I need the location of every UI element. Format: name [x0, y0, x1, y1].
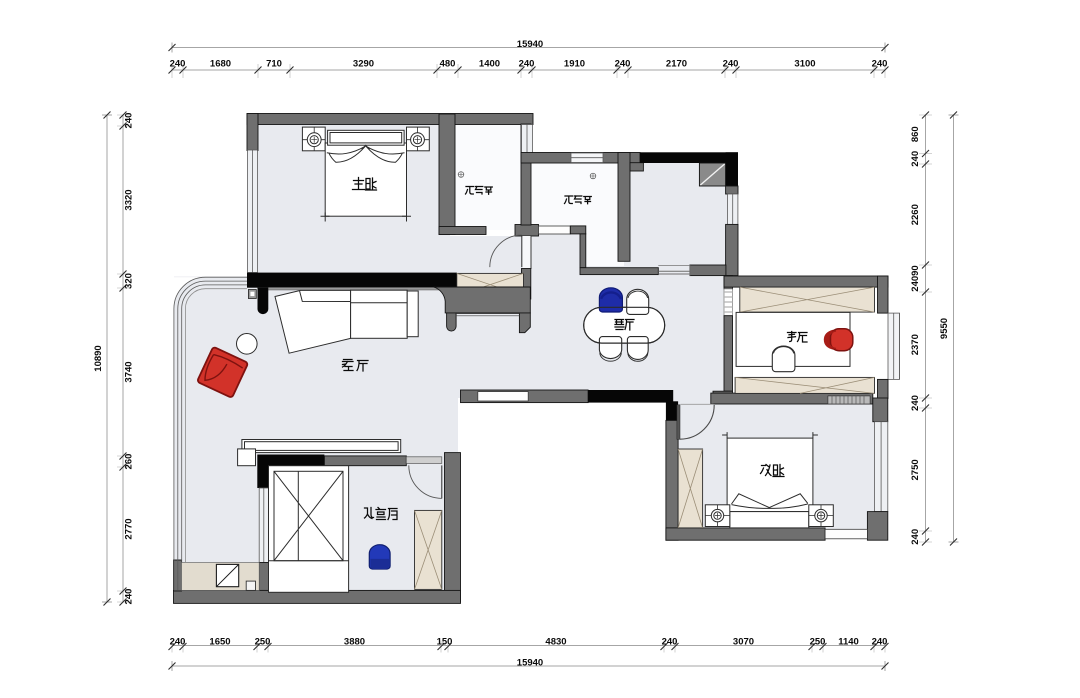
svg-text:24090: 24090 [910, 265, 921, 291]
svg-text:240: 240 [910, 151, 921, 167]
svg-text:3880: 3880 [344, 637, 365, 648]
svg-text:240: 240 [124, 113, 135, 129]
svg-text:3100: 3100 [794, 59, 815, 70]
svg-text:240: 240 [615, 59, 631, 70]
svg-text:250: 250 [810, 637, 826, 648]
svg-text:480: 480 [440, 59, 456, 70]
svg-text:250: 250 [255, 637, 271, 648]
svg-text:1680: 1680 [210, 59, 231, 70]
svg-text:4830: 4830 [545, 637, 566, 648]
svg-text:2370: 2370 [910, 334, 921, 355]
svg-text:10890: 10890 [93, 345, 104, 371]
svg-text:860: 860 [910, 126, 921, 142]
svg-text:2170: 2170 [666, 59, 687, 70]
svg-text:1650: 1650 [209, 637, 230, 648]
svg-text:240: 240 [170, 637, 186, 648]
svg-text:3070: 3070 [733, 637, 754, 648]
svg-text:2770: 2770 [124, 518, 135, 539]
svg-text:15940: 15940 [517, 658, 543, 669]
svg-text:240: 240 [910, 395, 921, 411]
svg-text:240: 240 [662, 637, 678, 648]
svg-text:150: 150 [437, 637, 453, 648]
svg-text:710: 710 [266, 59, 282, 70]
svg-text:240: 240 [723, 59, 739, 70]
svg-text:320: 320 [124, 273, 135, 289]
svg-text:2750: 2750 [910, 459, 921, 480]
svg-text:240: 240 [124, 589, 135, 605]
svg-text:3320: 3320 [124, 189, 135, 210]
svg-text:3290: 3290 [353, 59, 374, 70]
svg-text:3740: 3740 [124, 361, 135, 382]
svg-text:9550: 9550 [939, 318, 950, 339]
svg-text:240: 240 [872, 637, 888, 648]
svg-text:240: 240 [910, 529, 921, 545]
svg-text:15940: 15940 [517, 39, 543, 50]
svg-text:1140: 1140 [838, 637, 859, 648]
svg-text:260: 260 [124, 454, 135, 470]
svg-text:2260: 2260 [910, 204, 921, 225]
svg-text:240: 240 [519, 59, 535, 70]
svg-text:240: 240 [872, 59, 888, 70]
svg-text:240: 240 [170, 59, 186, 70]
svg-text:1400: 1400 [479, 59, 500, 70]
svg-text:1910: 1910 [564, 59, 585, 70]
